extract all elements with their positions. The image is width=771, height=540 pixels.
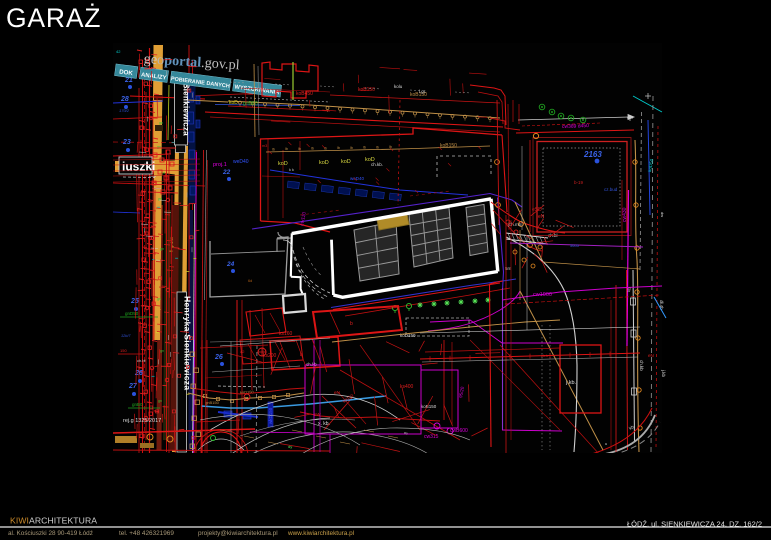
svg-text:b: b <box>350 321 353 327</box>
svg-text:26: 26 <box>214 354 223 361</box>
svg-text:j.kb: j.kb <box>661 369 666 378</box>
svg-text:kb.: kb. <box>626 286 632 292</box>
svg-text:23: 23 <box>122 139 131 146</box>
svg-text:dw: dw <box>660 212 665 217</box>
svg-text:ch.k: ch.k <box>541 353 548 358</box>
svg-text:cw315: cw315 <box>424 434 439 440</box>
svg-text:m3: m3 <box>262 144 267 148</box>
svg-text:cw389 d450: cw389 d450 <box>562 123 589 130</box>
svg-text:ch.bł: ch.bł <box>137 358 146 363</box>
svg-text:koB150: koB150 <box>421 404 437 409</box>
svg-text:Henryka Sienkiewicza: Henryka Sienkiewicza <box>183 296 193 390</box>
svg-text:u: u <box>605 441 607 446</box>
svg-text:koD: koD <box>341 159 351 165</box>
svg-text:weD40: weD40 <box>233 159 249 165</box>
svg-text:eN: eN <box>648 353 654 358</box>
svg-text:lb: lb <box>376 145 379 149</box>
svg-text:cwB600: cwB600 <box>450 428 468 434</box>
svg-text:gn: gn <box>158 399 162 403</box>
svg-text:gnD80: gnD80 <box>243 101 258 107</box>
svg-text:weD40: weD40 <box>350 176 365 181</box>
svg-text:b-19: b-19 <box>574 180 584 185</box>
svg-text:lb: lb <box>298 147 301 151</box>
svg-text:gnB0: gnB0 <box>132 402 143 407</box>
svg-text:24: 24 <box>226 261 235 268</box>
svg-text:proj.1: proj.1 <box>213 162 227 168</box>
svg-text:lb: lb <box>285 147 288 151</box>
svg-text:eN: eN <box>334 390 340 395</box>
svg-text:2163: 2163 <box>583 150 602 159</box>
svg-text:12b/7: 12b/7 <box>121 334 131 338</box>
svg-text:eN: eN <box>538 214 545 220</box>
svg-text:28: 28 <box>120 96 129 103</box>
svg-text:iuszki: iuszki <box>122 160 155 174</box>
svg-text:dł.4b: dł.4b <box>659 300 664 310</box>
svg-text:26: 26 <box>134 370 143 377</box>
svg-text:lb: lb <box>311 147 314 151</box>
svg-text:22: 22 <box>222 169 231 176</box>
svg-text:pn45: pn45 <box>156 300 161 310</box>
svg-text:koD: koD <box>229 100 238 106</box>
svg-text:gnD50: gnD50 <box>125 311 139 316</box>
svg-text:gnB150: gnB150 <box>205 400 220 405</box>
svg-text:gn: gn <box>159 121 163 125</box>
svg-text:j.kb.: j.kb. <box>565 380 577 386</box>
svg-text:gn: gn <box>160 349 164 353</box>
svg-text:6d: 6d <box>248 279 252 283</box>
svg-text:ch.kb: ch.kb <box>639 360 644 371</box>
svg-text:lb: lb <box>363 146 366 150</box>
svg-text:42: 42 <box>116 49 121 54</box>
svg-text:cz.bud: cz.bud <box>604 187 618 192</box>
svg-text:cw430: cw430 <box>622 207 628 222</box>
svg-text:170/2: 170/2 <box>119 108 130 113</box>
svg-text:l.gr.: l.gr. <box>419 89 426 94</box>
svg-text:25: 25 <box>130 298 139 305</box>
svg-text:5605: 5605 <box>570 243 580 248</box>
svg-text:koB150: koB150 <box>440 143 457 149</box>
svg-text:koD: koD <box>278 161 288 167</box>
svg-text:lb: lb <box>272 147 275 151</box>
svg-text:ch.kb.: ch.kb. <box>371 162 383 167</box>
svg-text:kolu: kolu <box>394 84 403 89</box>
svg-text:ks160: ks160 <box>279 331 293 337</box>
svg-text:gn: gn <box>160 247 164 251</box>
svg-text:lb: lb <box>324 146 327 150</box>
svg-text:rej.g 1325/2017: rej.g 1325/2017 <box>123 418 161 424</box>
svg-text:a2: a2 <box>240 349 245 354</box>
svg-text:ks200: ks200 <box>263 353 277 359</box>
svg-text:xₒ: xₒ <box>404 430 408 435</box>
svg-text:k k: k k <box>289 168 294 172</box>
svg-text:jch.mb.: jch.mb. <box>507 222 523 227</box>
svg-text:27: 27 <box>128 383 138 390</box>
svg-text:KIWIARCHITEKTURA: KIWIARCHITEKTURA <box>10 516 97 526</box>
svg-text:ŁÓDŹ, ul. SIENKIEWICZA 24, DZ.: ŁÓDŹ, ul. SIENKIEWICZA 24, DZ. 162/2 <box>627 520 762 529</box>
svg-text:koB450: koB450 <box>296 91 313 97</box>
svg-text:Sienkiewicza: Sienkiewicza <box>182 83 191 136</box>
svg-text:GARAŻ: GARAŻ <box>6 3 101 33</box>
svg-text:ks400: ks400 <box>400 384 414 390</box>
svg-text:150: 150 <box>120 348 127 353</box>
svg-text:gn: gn <box>157 297 161 301</box>
svg-text:koD: koD <box>319 160 329 166</box>
svg-text:lb: lb <box>350 146 353 150</box>
svg-text:lb: lb <box>337 146 340 150</box>
